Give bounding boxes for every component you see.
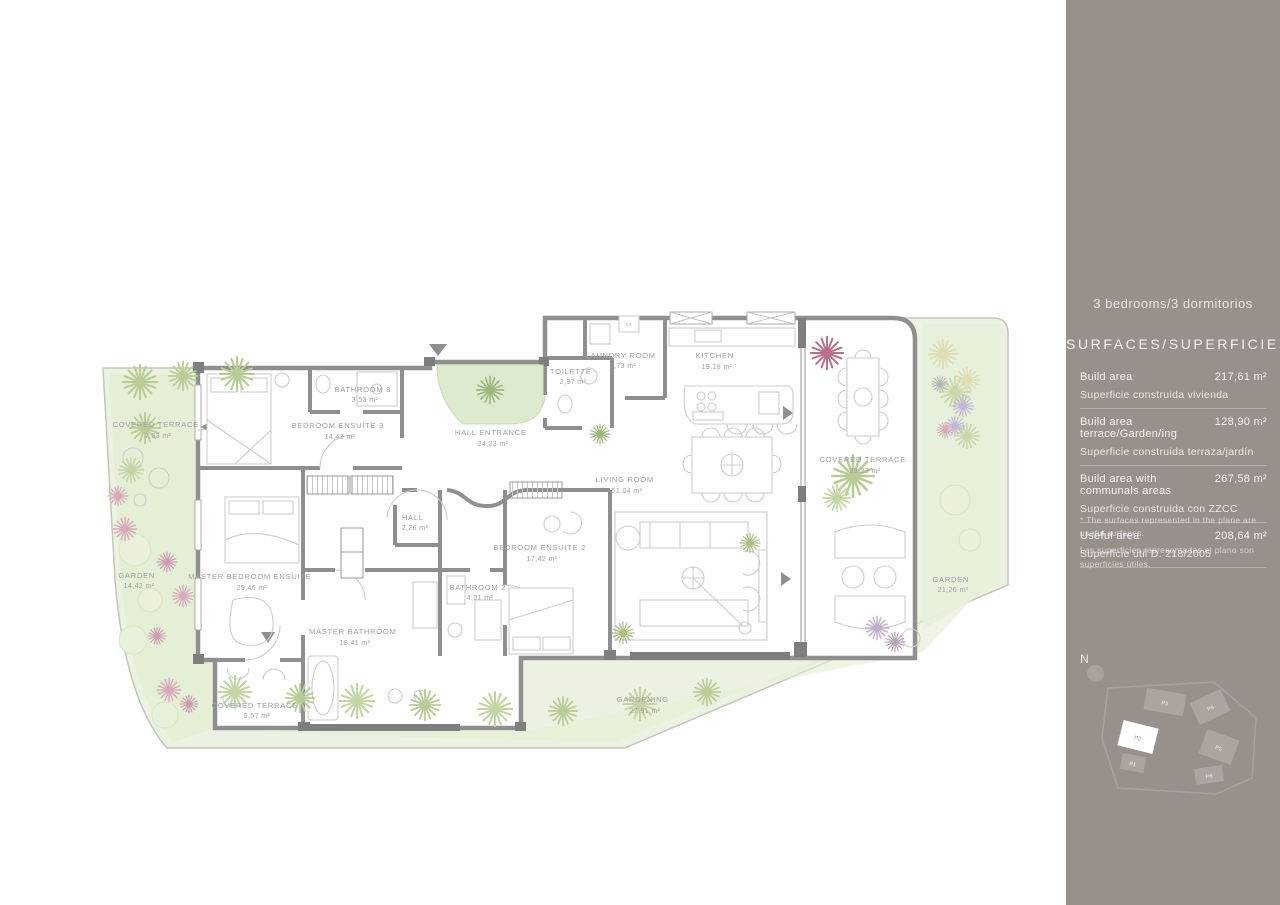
info-sidebar: 3 bedrooms/3 dormitorios SURFACES/SUPERF… [1066, 0, 1280, 905]
entrance-arrow [429, 344, 447, 356]
svg-text:P3: P3 [1161, 700, 1169, 707]
surface-row-terrace-garden: Build area terrace/Garden/ing 128,90 m² … [1080, 411, 1267, 466]
surface-label-es: Superficie construida terraza/jardín [1080, 440, 1267, 465]
svg-text:P6: P6 [1206, 774, 1214, 781]
surface-value: 128,90 m² [1215, 416, 1267, 428]
laundry-unit-label: LY [626, 322, 632, 327]
site-building-p4: P4 [1190, 689, 1231, 725]
site-building-p6: P6 [1194, 765, 1224, 785]
site-building-p3: P3 [1143, 688, 1186, 717]
site-building-p2-highlighted: P2 [1117, 720, 1158, 754]
divider [1080, 408, 1267, 409]
surface-label-en: Build area with communals areas [1080, 473, 1215, 497]
site-building-p1: P1 [1120, 753, 1146, 773]
surface-label-es: Superficie construida vivienda [1080, 383, 1267, 408]
svg-text:P1: P1 [1129, 761, 1137, 768]
surface-label-en: Build area [1080, 371, 1133, 383]
surface-value: 267,58 m² [1215, 473, 1267, 485]
surface-value: 217,61 m² [1215, 371, 1267, 383]
site-plan-minimap: P3 P4 P5 P6 P2 [1066, 676, 1280, 816]
footnote: * The surfaces represented in the plane … [1080, 514, 1267, 571]
surface-row-build-area: Build area 217,61 m² Superficie construi… [1080, 366, 1267, 409]
surfaces-heading: SURFACES/SUPERFICIES [1066, 336, 1280, 352]
divider [1080, 465, 1267, 466]
footnote-en: * The surfaces represented in the plane … [1080, 515, 1256, 538]
site-building-p5: P5 [1199, 729, 1240, 765]
unit-type-title: 3 bedrooms/3 dormitorios [1066, 296, 1280, 311]
footnote-es: Las superficies representadas el plano s… [1080, 544, 1267, 570]
floor-plan: COVERED TERRACE 7,53 m² BEDROOM ENSUITE … [95, 300, 1015, 760]
compass-north-label: N [1080, 652, 1089, 666]
surface-label-en: Build area terrace/Garden/ing [1080, 416, 1215, 440]
brochure-page: COVERED TERRACE 7,53 m² BEDROOM ENSUITE … [0, 0, 1280, 905]
